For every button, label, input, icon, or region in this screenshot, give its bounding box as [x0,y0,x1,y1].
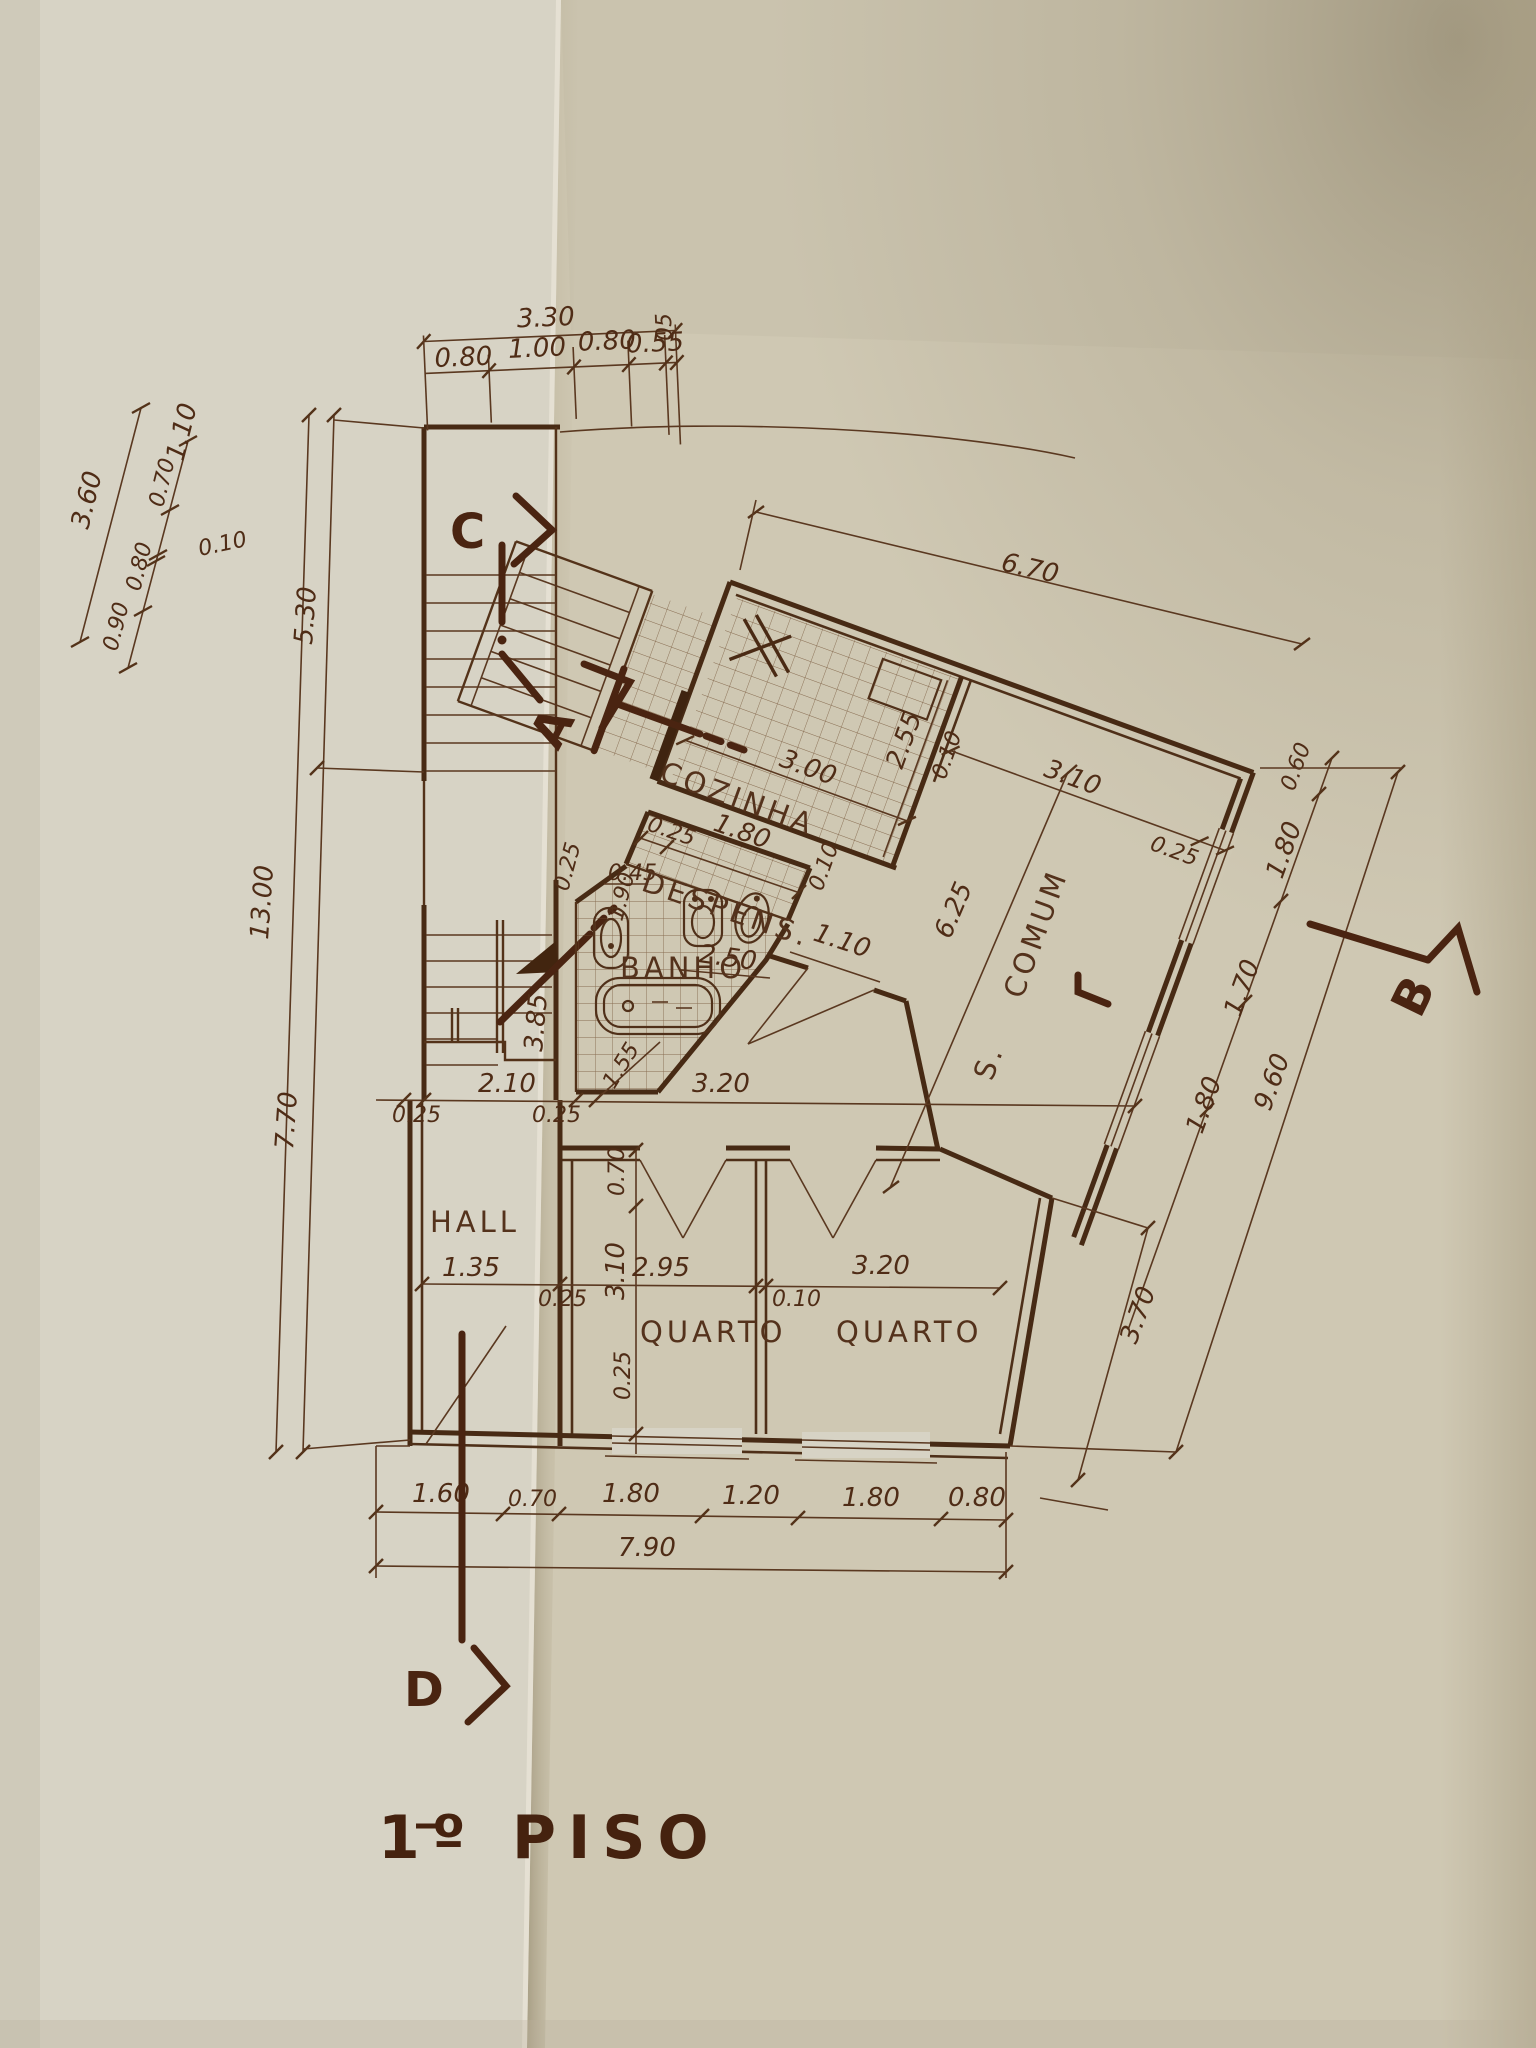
dim-bottom-5: 0.80 [948,1483,1006,1513]
dim-q-row-0: 0.25 [538,1287,587,1312]
dim-hall-width: 1.35 [442,1253,500,1283]
dim-q-row-3: 3.20 [852,1251,910,1281]
dim-q-left-1: 3.10 [601,1242,631,1300]
dim-q-left-0: 0.70 [605,1147,630,1196]
title-word: PISO [512,1803,721,1873]
dim-left-lower: 7.70 [270,1091,304,1151]
dim-mid-2: 0.25 [532,1103,581,1128]
dim-q-row-2: 0.10 [772,1287,821,1312]
dim-top-4: 05 [652,312,678,341]
dim-mid-0: 0.25 [392,1103,441,1128]
dim-bottom-3: 1.20 [722,1481,780,1511]
dim-left-total: 13.00 [245,864,280,940]
floor-plan-drawing: 3.00 2.55 0.10 [0,0,1536,2048]
section-letter-c: C [450,504,485,560]
room-label-quarto1: QUARTO [640,1315,786,1349]
room-label-quarto2: QUARTO [836,1315,982,1349]
dim-q-row-1: 2.95 [632,1253,690,1283]
floor-plan-photo: 3.00 2.55 0.10 [0,0,1536,2048]
dim-q-left-2: 0.25 [611,1351,636,1400]
dim-bottom-total: 7.90 [618,1533,676,1563]
dim-mid-4: 3.20 [692,1069,750,1099]
dim-top-total: 3.30 [516,302,575,334]
dim-bottom-1: 0.70 [508,1487,557,1512]
dim-left-upper: 5.30 [289,586,323,646]
dim-top-0: 0.80 [434,342,493,374]
title-number: 1º [378,1803,478,1873]
dim-mid-1: 2.10 [478,1069,536,1099]
room-label-banho: BANHO [620,951,746,985]
dim-top-1: 1.00 [508,332,567,364]
dim-bottom-4: 1.80 [842,1483,900,1513]
room-label-hall: HALL [430,1205,520,1239]
section-letter-d: D [404,1662,444,1718]
paper-background [0,0,1536,2048]
drawing-title: 1º PISO [378,1803,721,1873]
dim-bottom-2: 1.80 [602,1479,660,1509]
dim-fold-vertical: 3.85 [519,992,554,1052]
